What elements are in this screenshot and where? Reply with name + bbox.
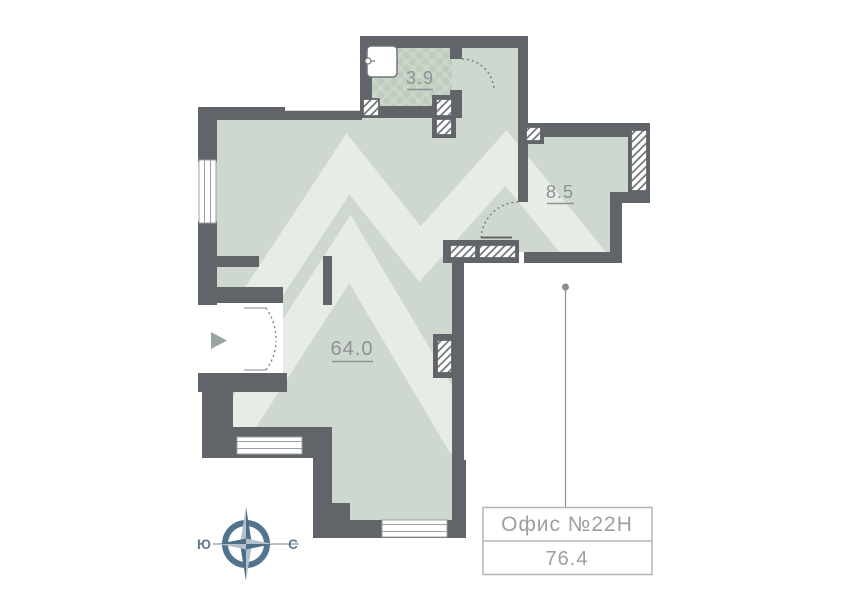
vent-shaft-bathroom-left [363, 99, 379, 116]
window-bottom-left [237, 437, 302, 454]
entrance-recess [198, 302, 283, 374]
info-box-area: 76.4 [546, 548, 589, 570]
floor-plan: 3.9 8.5 64.0 Офис №22Н 76.4 Ю С [0, 0, 843, 609]
label-main-area: 64.0 [331, 338, 374, 360]
leader-dot [562, 284, 569, 291]
label-room85-area: 8.5 [546, 182, 574, 202]
vent-shaft-room85-corner [526, 127, 541, 141]
info-box: Офис №22Н 76.4 [483, 508, 652, 575]
compass-east-label: С [288, 537, 298, 552]
info-box-title: Офис №22Н [501, 513, 633, 536]
sink-icon [365, 46, 397, 77]
hatched-window-room85 [631, 130, 647, 191]
floor-plan-page: 3.9 8.5 64.0 Офис №22Н 76.4 Ю С [0, 0, 843, 609]
window-bottom [382, 520, 447, 537]
label-bathroom-area: 3.9 [406, 68, 434, 88]
window-left [199, 160, 216, 223]
vent-shaft-band-right [479, 245, 516, 258]
vent-shaft-right-wall [437, 340, 452, 373]
compass-icon: Ю С [197, 507, 299, 581]
compass-west-label: Ю [197, 537, 211, 552]
leader [562, 284, 569, 508]
vent-shaft-band-left [450, 245, 476, 258]
vent-shaft-stack-top [436, 99, 452, 116]
vent-shaft-stack-bottom [436, 119, 452, 135]
